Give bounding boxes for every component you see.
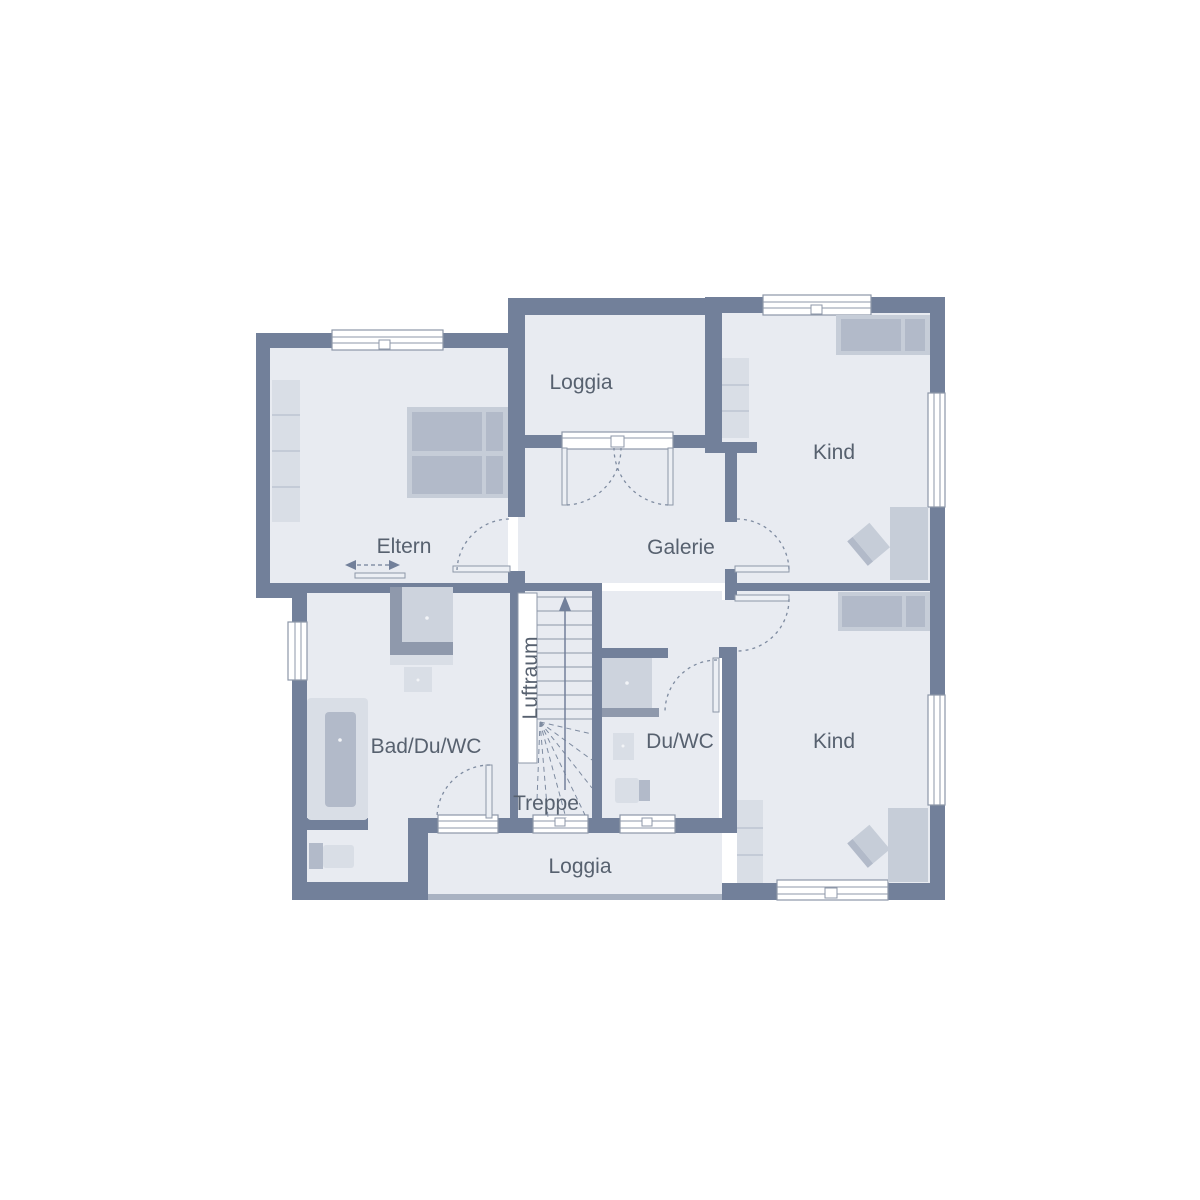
floor-plan-page: Loggia Kind Eltern Galerie Luftraum Bad/… xyxy=(0,0,1200,1200)
room-label-duwc: Du/WC xyxy=(646,730,714,753)
bed-eltern xyxy=(407,407,508,498)
wall-segment xyxy=(725,583,945,591)
room-label-eltern: Eltern xyxy=(377,535,432,558)
room-label-loggia-bottom: Loggia xyxy=(548,855,611,878)
wall-segment xyxy=(705,313,722,453)
wardrobe-kind-bottom xyxy=(737,800,763,883)
wall-segment xyxy=(705,442,757,453)
bathtub-bad xyxy=(307,698,368,820)
bed-kind-bottom xyxy=(838,592,930,631)
bed-kind-top xyxy=(836,315,930,355)
wall-segment xyxy=(602,648,668,658)
wall-segment xyxy=(725,453,737,522)
wall-segment xyxy=(517,583,602,591)
wall-segment xyxy=(592,583,602,820)
wall-segment xyxy=(408,818,428,900)
wall-segment xyxy=(508,298,722,315)
window-treppe-south xyxy=(533,815,588,833)
room-label-kind-bottom: Kind xyxy=(813,730,855,753)
sink-duwc xyxy=(613,733,634,760)
wall-segment xyxy=(508,445,525,517)
floor-doorway-kind-bottom xyxy=(722,600,737,647)
room-label-treppe: Treppe xyxy=(513,792,579,815)
floor-galerie xyxy=(518,445,722,583)
window-kind-bottom-east xyxy=(928,695,945,805)
sink-bad xyxy=(404,667,432,692)
floor-plan-svg: Loggia Kind Eltern Galerie Luftraum Bad/… xyxy=(0,0,1200,1200)
wardrobe-kind-top xyxy=(722,358,749,438)
floor-galerie-corridor xyxy=(602,591,722,658)
room-label-galerie: Galerie xyxy=(647,536,715,559)
wall-segment xyxy=(508,298,525,448)
shower-duwc xyxy=(602,658,659,717)
wall-segment xyxy=(510,583,518,820)
shower-bad xyxy=(390,587,453,665)
window-eltern-north xyxy=(332,330,443,350)
window-kind-top-north xyxy=(763,295,871,315)
wall-segment xyxy=(256,333,270,598)
desk-kind-top xyxy=(890,507,928,580)
room-label-bad: Bad/Du/WC xyxy=(371,735,482,758)
window-kind-top-east xyxy=(928,393,945,507)
room-label-luftraum: Luftraum xyxy=(519,637,542,720)
room-label-loggia-top: Loggia xyxy=(549,371,612,394)
toilet-bad xyxy=(309,843,354,869)
window-kind-bottom-south xyxy=(777,880,888,900)
window-bad-west xyxy=(288,622,307,680)
wall-segment xyxy=(722,658,737,833)
window-duwc-south xyxy=(620,815,675,833)
wall-segment xyxy=(292,882,428,900)
desk-kind-bottom xyxy=(888,808,928,882)
wall-segment xyxy=(930,297,945,900)
toilet-duwc xyxy=(615,778,650,803)
wall-segment xyxy=(719,647,737,658)
wall-segment xyxy=(256,583,517,593)
wardrobe-eltern xyxy=(272,380,300,522)
room-label-kind-top: Kind xyxy=(813,441,855,464)
loggia-parapet xyxy=(428,894,722,900)
